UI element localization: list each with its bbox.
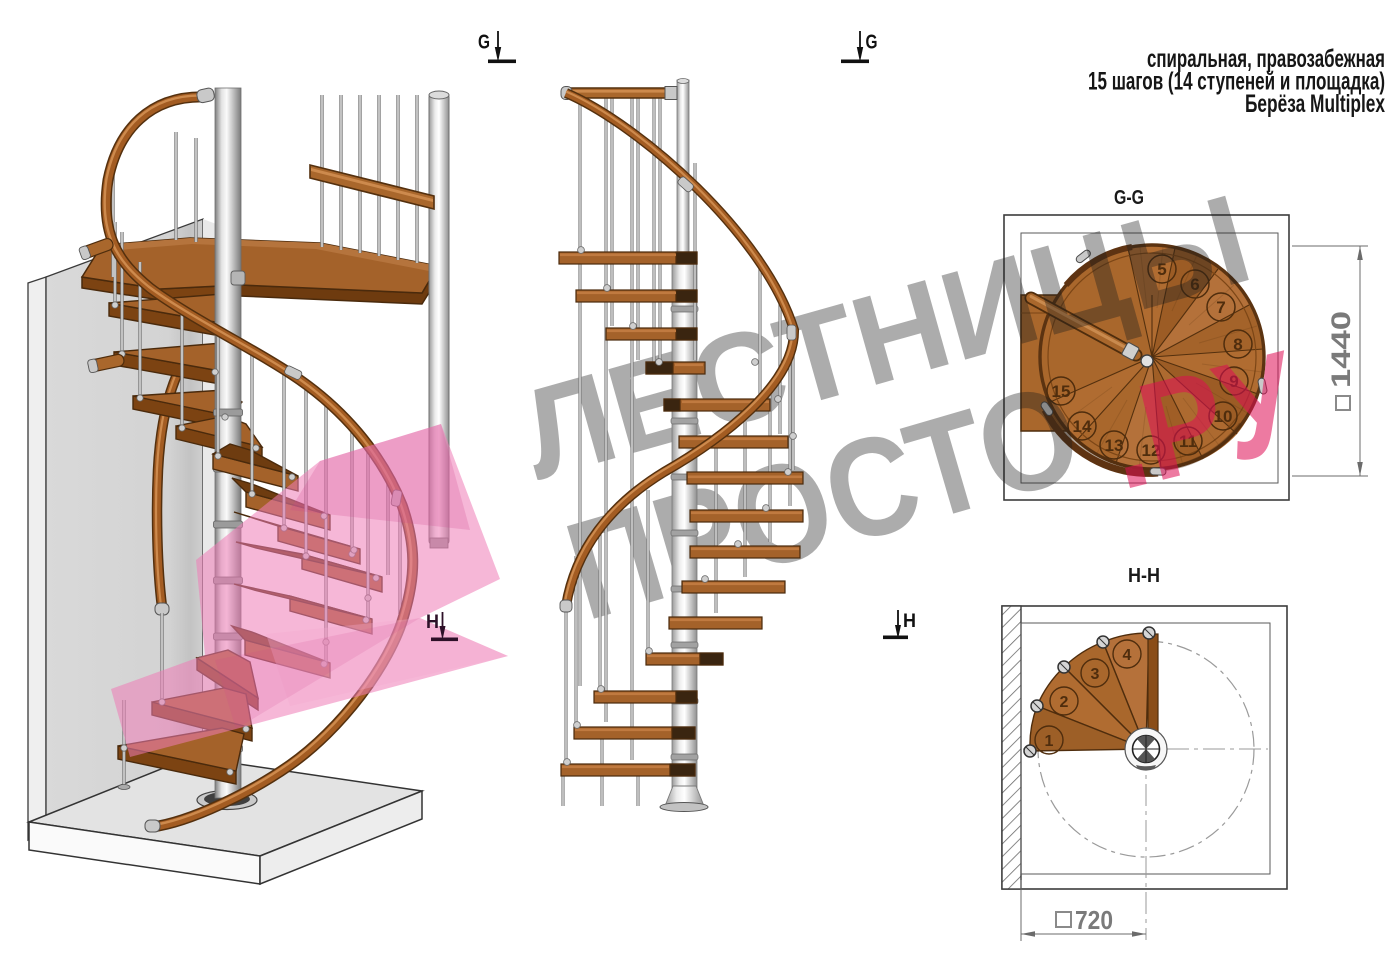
svg-text:720: 720 bbox=[1075, 905, 1113, 935]
svg-text:H: H bbox=[426, 612, 439, 633]
svg-text:1440: 1440 bbox=[1326, 311, 1356, 388]
svg-text:Берёза Multiplex: Берёза Multiplex bbox=[1245, 90, 1385, 118]
svg-text:G: G bbox=[478, 32, 490, 54]
svg-text:G: G bbox=[866, 32, 878, 54]
svg-text:H: H bbox=[903, 611, 916, 632]
svg-text:3: 3 bbox=[1091, 666, 1100, 683]
svg-text:1: 1 bbox=[1045, 733, 1054, 750]
svg-text:H-H: H-H bbox=[1128, 565, 1160, 587]
svg-text:4: 4 bbox=[1123, 647, 1132, 664]
svg-text:2: 2 bbox=[1060, 694, 1069, 711]
